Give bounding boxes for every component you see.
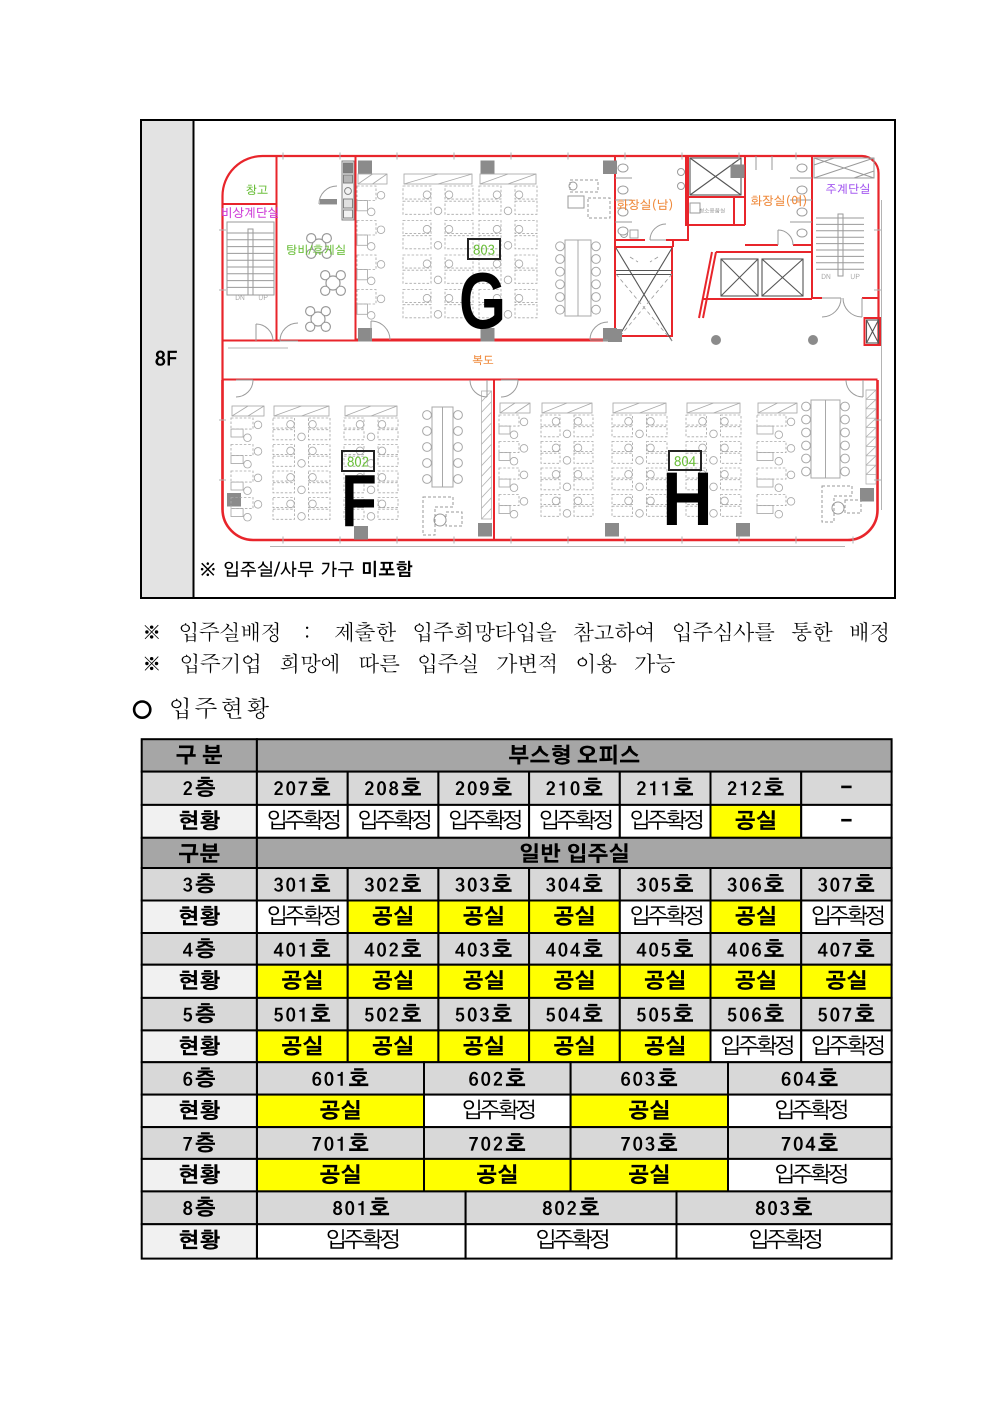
svg-text:H: H bbox=[662, 457, 713, 541]
svg-text:F: F bbox=[341, 461, 377, 543]
svg-text:G: G bbox=[459, 257, 506, 346]
